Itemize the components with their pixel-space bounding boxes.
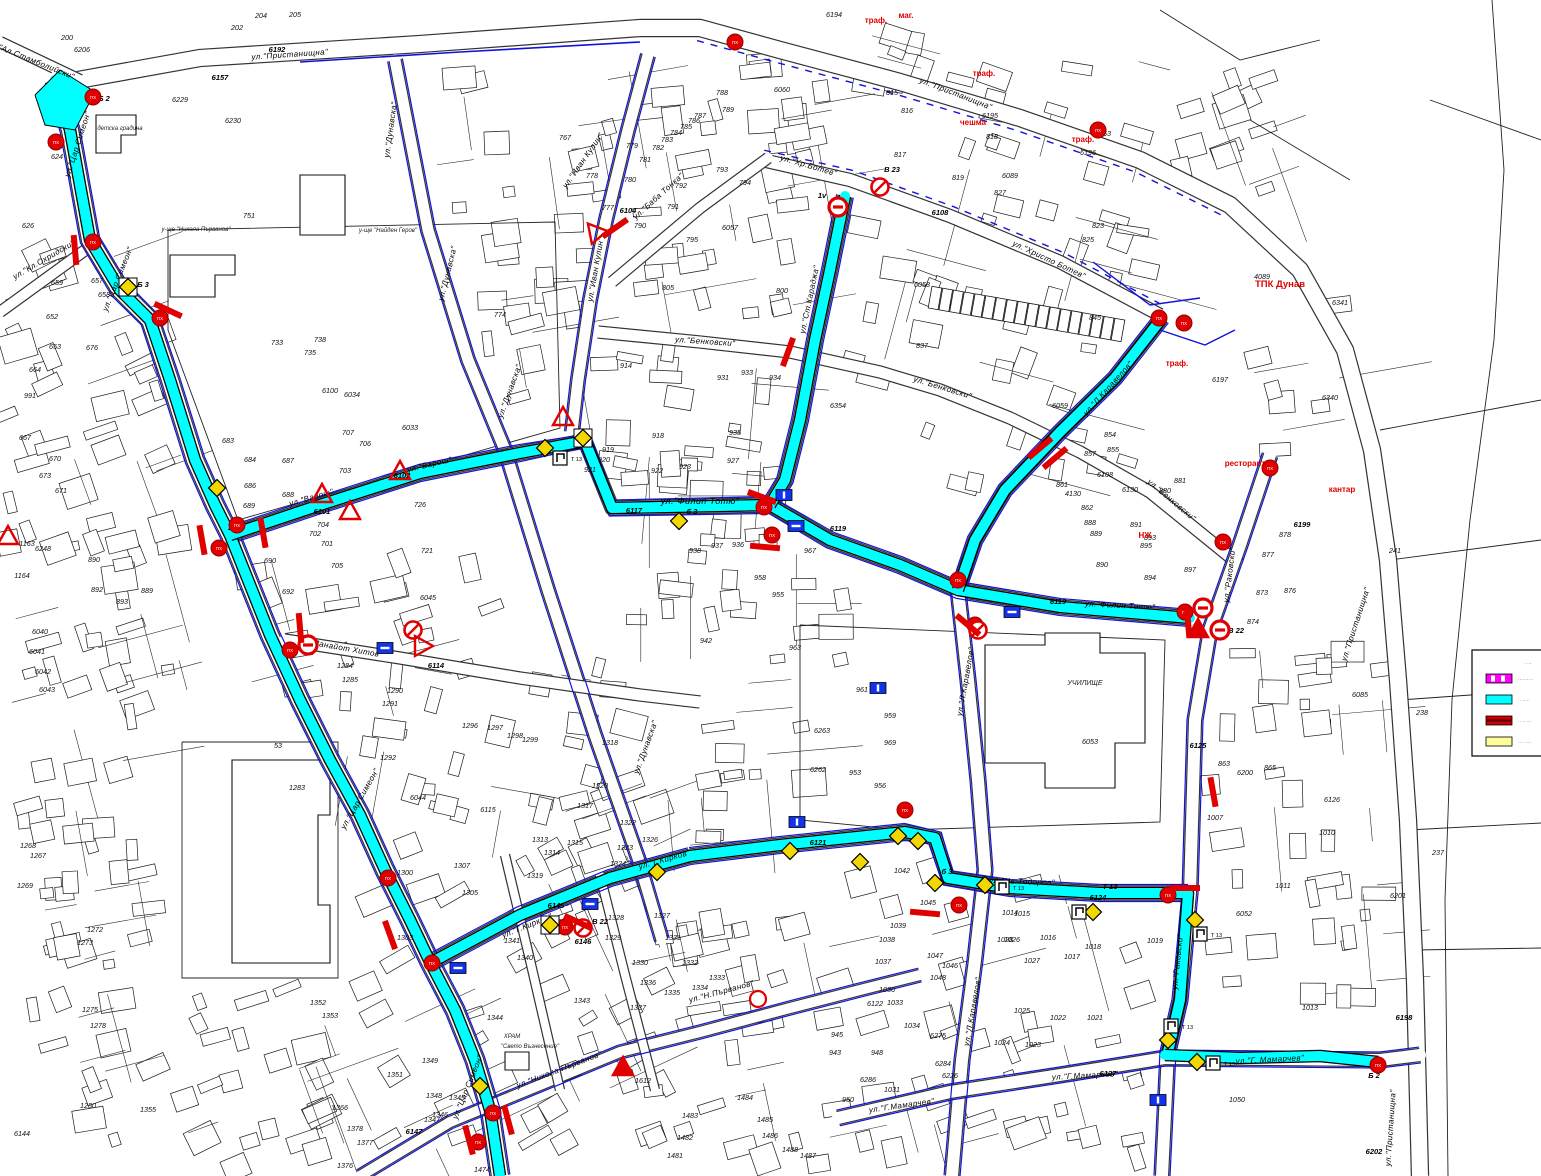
parcel-number: 948: [871, 1048, 883, 1057]
parcel-outline: [1246, 933, 1277, 960]
parcel-number: 6100: [322, 386, 338, 395]
hydrant-label: ПХ: [956, 903, 962, 908]
red-poi-label: траф.: [865, 16, 887, 25]
parcel-number: 692: [282, 587, 294, 596]
parcel-number: 6122: [867, 999, 883, 1008]
hydrant-label: ПХ: [955, 578, 961, 583]
parcel-number: 6060: [774, 85, 790, 94]
parcel-outline: [812, 80, 830, 103]
parcel-number: 1019: [1147, 936, 1163, 945]
parcel-number: 1322: [620, 818, 636, 827]
parcel-number: 6206: [74, 45, 90, 54]
parcel-outline: [1258, 680, 1288, 704]
parcel-outline: [104, 756, 133, 783]
parcel-number: 1317: [577, 801, 594, 810]
water-facility-icon: [789, 817, 805, 828]
parcel-number: 1299: [522, 735, 538, 744]
parcel-outline: [863, 302, 879, 324]
parcel-outline: [592, 657, 606, 678]
parcel-outline: [965, 1109, 997, 1128]
legend-swatch: [1486, 695, 1512, 704]
parcel-number: 782: [652, 143, 664, 152]
parcel-boundary-line: [736, 707, 792, 712]
parcel-outline: [715, 743, 744, 763]
no-entry-sign-icon: [1194, 599, 1212, 617]
fire-hydrant-icon: ПХ: [1262, 460, 1278, 476]
parcel-number: 6194: [826, 10, 842, 19]
parcel-number: 1267: [30, 851, 47, 860]
parcel-number: 6045: [420, 593, 437, 602]
parcel-number: 919: [602, 445, 614, 454]
parcel-boundary-line: [491, 786, 560, 798]
parcel-number: 918: [652, 431, 664, 440]
parcel-outline: [126, 839, 138, 860]
parcel-boundary-line: [492, 811, 500, 858]
street-code-label: 6117: [626, 506, 643, 515]
parcel-number: 1487: [800, 1151, 817, 1160]
parcel-number: 6059: [1052, 401, 1068, 410]
parcel-number: 823: [1092, 221, 1104, 230]
parcel-number: 1164: [14, 571, 29, 580]
parcel-number: 1290: [387, 686, 403, 695]
poi-label: УЧИЛИЩЕ: [1066, 680, 1102, 687]
parcel-number: 6275: [930, 1031, 947, 1040]
parcel-outline: [108, 1132, 121, 1147]
valve-box: [553, 451, 567, 465]
street-name-label: ул."Л.Каравелов": [1081, 359, 1136, 418]
parcel-number: 673: [39, 471, 51, 480]
street-code-label: 6119: [1050, 597, 1067, 606]
street-code-label: 6146: [575, 937, 593, 946]
parcel-outline: [63, 675, 92, 698]
legend: · ··············· ······· ·· ····· · ···…: [1472, 650, 1541, 756]
hydrant-label: ПХ: [490, 1111, 496, 1116]
parcel-boundary-line: [126, 662, 202, 682]
parcel-outline: [832, 652, 848, 667]
fire-hydrant-icon: ПХ: [85, 89, 101, 105]
parcel-number: 991: [24, 391, 36, 400]
parcel-number: 671: [55, 486, 67, 495]
map-canvas[interactable]: ул."Ал.Стамболийски"ул."Кл.Охридски"ул."…: [0, 0, 1541, 1176]
parcel-outline: [145, 445, 176, 474]
parcel-outline: [1044, 102, 1068, 119]
parcel-number: 1612: [635, 1076, 651, 1085]
parcel-outline: [697, 1098, 725, 1115]
parcel-number: 890: [1096, 560, 1108, 569]
parcel-number: 1045: [920, 898, 937, 907]
parcel-number: 6057: [722, 223, 739, 232]
parcel-number: 658: [98, 290, 110, 299]
parcel-number: 855: [1107, 445, 1120, 454]
parcel-number: 1345: [449, 1093, 466, 1102]
parcel-outline: [86, 632, 103, 648]
parcel-number: 1275: [82, 1005, 99, 1014]
parcel-outline: [880, 894, 903, 918]
valve-code-label: Т 13: [571, 457, 582, 463]
parcel-outline: [0, 406, 18, 424]
parcel-boundary-line: [347, 1078, 371, 1130]
parcel-number: 690: [264, 556, 276, 565]
parcel-outline: [708, 99, 723, 122]
parcel-number: 1486: [762, 1131, 778, 1140]
parcel-outline: [459, 553, 481, 583]
parcel-outline: [1255, 181, 1274, 196]
parcel-number: 1025: [1014, 1006, 1031, 1015]
parcel-outline: [1124, 980, 1156, 1009]
parcel-boundary-line: [1382, 700, 1387, 752]
poi-label: ХРАМ: [503, 1034, 521, 1040]
parcel-number: 857: [1084, 449, 1097, 458]
parcel-outline: [433, 794, 458, 817]
parcel-number: 789: [722, 105, 734, 114]
red-poi-label: траф.: [1072, 135, 1094, 144]
parcel-outline: [696, 831, 721, 844]
parcel-outline: [258, 1118, 279, 1140]
legend-header: · ···: [1524, 661, 1531, 666]
parcel-number: 707: [342, 428, 355, 437]
parcel-number: 927: [727, 456, 740, 465]
parcel-outline: [704, 606, 720, 632]
facility-bar: [796, 819, 798, 826]
parcel-outline: [478, 599, 504, 617]
parcel-outline: [1253, 704, 1277, 732]
prohibition-sign-icon: [872, 179, 889, 196]
parcel-number: 1314: [544, 848, 560, 857]
parcel-number: 1048: [930, 973, 946, 982]
parcel-number: 1341: [504, 936, 520, 945]
parcel-boundary-line: [98, 625, 183, 648]
parcel-number: 854: [1104, 430, 1116, 439]
no-entry-bar: [303, 643, 313, 646]
parcel-outline: [234, 990, 268, 1010]
parcel-outline: [1036, 200, 1058, 221]
block-boundary: [1390, 540, 1541, 560]
parcel-number: 1284: [337, 661, 353, 670]
parcel-outline: [83, 529, 105, 556]
parcel-outline: [380, 945, 415, 974]
hydrant-label: ПХ: [1095, 128, 1101, 133]
hydrant-label: ПХ: [1375, 1063, 1381, 1068]
water-facility-icon: [788, 521, 804, 532]
parcel-outline: [699, 909, 725, 938]
parcel-number: 819: [952, 173, 964, 182]
hydrant-label: ПХ: [761, 505, 767, 510]
parcel-outline: [1095, 1034, 1121, 1047]
parcel-number: 676: [86, 343, 98, 352]
water-facility-icon: [870, 683, 886, 694]
parcel-boundary-line: [1370, 808, 1373, 841]
parcel-number: 6042: [35, 667, 51, 676]
parcel-outline: [602, 118, 617, 135]
parcel-boundary-line: [907, 249, 986, 270]
parcel-number: 1015: [1014, 909, 1031, 918]
parcel-number: 877: [1262, 550, 1275, 559]
hydrant-label: ПХ: [769, 533, 775, 538]
parcel-outline: [693, 287, 710, 311]
parcel-number: 6033: [402, 423, 418, 432]
parcel-number: 935: [729, 428, 742, 437]
parcel-outline: [232, 1027, 249, 1051]
parcel-number: 6040: [32, 627, 48, 636]
parcel-outline: [725, 1039, 740, 1065]
parcel-number: 6058: [914, 280, 930, 289]
parcel-number: 894: [1144, 573, 1156, 582]
hydrant-label: ПХ: [1156, 316, 1162, 321]
parcel-number: 777: [602, 203, 615, 212]
valve-diamond: [1085, 904, 1102, 921]
hydrant-label: ПХ: [429, 961, 435, 966]
street-code-label: 6127: [1100, 1069, 1118, 1078]
parcel-outline: [661, 599, 674, 618]
parcel-number: 6126: [1324, 795, 1340, 804]
parcel-boundary-line: [1273, 115, 1305, 127]
parcel-outline: [606, 420, 631, 446]
parcel-number: 1329: [605, 933, 621, 942]
parcel-outline: [781, 97, 804, 121]
parcel-outline: [814, 1007, 844, 1030]
valve-diamond-icon: [574, 429, 592, 447]
parcel-number: 1011: [1275, 881, 1290, 890]
red-poi-label: траф.: [1166, 359, 1188, 368]
valve-box: [1164, 1019, 1178, 1033]
valve-diamond-icon: [119, 278, 137, 296]
parcel-number: 6196: [1080, 148, 1096, 157]
cadastral-map[interactable]: ул."Ал.Стамболийски"ул."Кл.Охридски"ул."…: [0, 0, 1541, 1176]
parcel-outline: [273, 979, 301, 997]
fire-hydrant-icon: ПХ: [1215, 534, 1231, 550]
parcel-boundary-line: [748, 679, 791, 683]
parcel-number: 880: [1159, 486, 1171, 495]
parcel-outline: [1264, 380, 1283, 400]
parcel-number: 959: [884, 711, 896, 720]
parcel-number: 703: [339, 466, 351, 475]
facility-dash: [454, 967, 463, 969]
parcel-outline: [965, 472, 984, 493]
parcel-boundary-line: [123, 746, 204, 760]
parcel-number: 1485: [757, 1115, 774, 1124]
parcel-number: 967: [804, 546, 817, 555]
street-code-label: 6119: [830, 524, 847, 533]
parcel-number: 6108: [1097, 470, 1113, 479]
parcel-number: 780: [624, 175, 636, 184]
parcel-number: 1285: [342, 675, 359, 684]
parcel-outline: [30, 820, 55, 844]
parcel-number: 892: [91, 585, 103, 594]
fire-hydrant-icon: ПХ: [229, 517, 245, 533]
parcel-outline: [91, 435, 126, 465]
parcel-number: 958: [754, 573, 766, 582]
parcel-number: 733: [271, 338, 283, 347]
building-outline: [170, 255, 235, 297]
parcel-number: 1377: [357, 1138, 374, 1147]
poi-label: у-ще "Никола Първанов": [161, 227, 232, 233]
parcel-number: 767: [559, 133, 572, 142]
street-code-label: 6157: [212, 73, 230, 82]
parcel-outline: [881, 1137, 907, 1168]
parcel-outline: [1209, 828, 1244, 852]
parcel-number: 6201: [1390, 891, 1406, 900]
parcel-boundary-line: [767, 780, 775, 874]
parcel-outline: [703, 791, 727, 811]
parcel-outline: [1249, 121, 1278, 139]
parcel-number: 876: [1284, 586, 1296, 595]
parcel-boundary-line: [12, 693, 46, 702]
fire-hydrant-icon: ПХ: [282, 642, 298, 658]
water-facility-icon: [450, 963, 466, 974]
street-code-label: б 3: [942, 867, 954, 876]
parcel-boundary-line: [747, 1062, 783, 1070]
parcel-number: 1303: [397, 933, 413, 942]
parcel-number: 1326: [642, 835, 658, 844]
parcel-boundary-line: [906, 1108, 918, 1152]
parcel-outline: [1302, 710, 1332, 737]
parcel-outline: [1117, 454, 1138, 469]
red-poi-label: траф.: [973, 69, 995, 78]
parcel-number: 1333: [709, 973, 725, 982]
hydrant-label: ПХ: [234, 523, 240, 528]
parcel-number: 921: [584, 465, 596, 474]
parcel-number: 687: [282, 456, 295, 465]
building-outline: [96, 115, 136, 153]
parcel-number: 800: [776, 286, 788, 295]
parcel-number: 6197: [1212, 375, 1229, 384]
parcel-number: 795: [686, 235, 699, 244]
parcel-number: 787: [694, 111, 707, 120]
parcel-number: 683: [222, 436, 234, 445]
parcel-outline: [105, 638, 130, 667]
parcel-number: 659: [51, 278, 63, 287]
parcel-outline: [183, 1120, 221, 1155]
parcel-number: 793: [716, 165, 728, 174]
hydrant-label: ПХ: [90, 240, 96, 245]
parcel-outline: [701, 720, 734, 733]
gate-valve-icon: Т 13: [553, 451, 582, 465]
valve-box: [1206, 1056, 1220, 1070]
parcel-outline: [103, 959, 115, 969]
parcel-number: 1016: [1040, 933, 1056, 942]
parcel-number: 862: [1081, 503, 1093, 512]
fire-hydrant-icon: ПХ: [727, 34, 743, 50]
parcel-boundary-line: [906, 285, 916, 321]
building-outline: [505, 1052, 529, 1070]
parcel-number: 1047: [927, 951, 944, 960]
street-code-label: В 22: [592, 917, 609, 926]
parcel-number: 1297: [487, 723, 504, 732]
gate-valve-icon: [1072, 905, 1086, 919]
facility-dash: [1008, 611, 1017, 613]
parcel-number: 667: [19, 433, 32, 442]
parcel-number: 1291: [382, 699, 398, 708]
parcel-boundary-line: [1249, 166, 1299, 184]
parcel-number: 837: [916, 341, 929, 350]
parcel-boundary-line: [1273, 148, 1307, 241]
parcel-outline: [503, 186, 516, 198]
parcel-number: 6052: [1236, 909, 1252, 918]
parcel-outline: [1121, 1132, 1144, 1147]
parcel-boundary-line: [1332, 706, 1425, 714]
parcel-outline: [372, 718, 406, 740]
street-code-label: В 23: [884, 165, 901, 174]
parcel-number: 969: [884, 738, 896, 747]
hydrant-label: ПХ: [90, 95, 96, 100]
parcel-outline: [649, 370, 682, 383]
street-code-label: 6145: [548, 901, 566, 910]
parcel-number: 237: [1431, 848, 1445, 857]
parcel-number: 1046: [942, 961, 958, 970]
parcel-outline: [64, 758, 97, 786]
parcel-number: 891: [1130, 520, 1142, 529]
parcel-number: 817: [894, 150, 907, 159]
parcel-number: 1038: [879, 935, 895, 944]
red-poi-label: ресторант: [1225, 459, 1266, 468]
parcel-outline: [958, 137, 975, 159]
parcel-number: 1347: [424, 1115, 441, 1124]
parcel-outline: [1205, 937, 1232, 955]
street-code-label: 6104: [620, 206, 638, 215]
block-boundary: [1445, 0, 1504, 1176]
facility-bar: [1157, 1097, 1159, 1104]
parcel-number: 6230: [225, 116, 241, 125]
hydrant-label: ПХ: [216, 546, 222, 551]
parcel-boundary-line: [437, 160, 474, 165]
water-facility-icon: [377, 643, 393, 654]
parcel-outline: [993, 195, 1023, 218]
parcel-number: 1483: [682, 1111, 698, 1120]
fire-hydrant-icon: ПХ: [897, 802, 913, 818]
parcel-number: 1331: [665, 933, 681, 942]
parcel-number: 1278: [90, 1021, 106, 1030]
fire-hydrant-icon: ПХ: [950, 572, 966, 588]
parcel-number: 6053: [1082, 737, 1098, 746]
fire-hydrant-icon: ПХ: [951, 897, 967, 913]
parcel-outline: [291, 1032, 331, 1065]
legend-swatch: [1486, 674, 1512, 683]
valve-code-label: Т 13: [1211, 933, 1222, 939]
parcel-outline: [1337, 985, 1351, 1008]
parcel-outline: [442, 66, 477, 90]
red-poi-label: НЖ: [1138, 531, 1152, 540]
block-boundary: [1250, 120, 1350, 180]
parcel-outline: [38, 1037, 68, 1054]
parcel-number: 624: [51, 152, 63, 161]
valve-code-label: Т 13: [1224, 1062, 1235, 1068]
parcel-number: 923: [679, 462, 691, 471]
parcel-number: 1307: [454, 861, 471, 870]
parcel-outline: [1078, 1125, 1101, 1148]
parcel-number: 751: [243, 211, 255, 220]
parcel-number: 953: [849, 768, 861, 777]
parcel-number: 6130: [1122, 485, 1138, 494]
parcel-number: 1034: [904, 1021, 920, 1030]
parcel-number: 1292: [380, 753, 396, 762]
parcel-outline: [1289, 833, 1306, 858]
parcel-outline: [633, 280, 658, 297]
parcel-outline: [1230, 649, 1256, 658]
fire-hydrant-icon: ПХ: [48, 134, 64, 150]
parcel-number: 6041: [29, 647, 45, 656]
parcel-outline: [536, 267, 554, 288]
parcel-number: 1280: [80, 1101, 96, 1110]
parcel-outline: [696, 770, 722, 790]
parcel-outline: [1312, 918, 1335, 945]
parcel-outline: [127, 929, 152, 947]
parcel-outline: [98, 987, 136, 1013]
parcel-outline: [109, 860, 129, 885]
parcel-number: 6229: [172, 95, 188, 104]
parcel-outline: [921, 422, 935, 439]
valve-diamond-icon: [1085, 904, 1102, 921]
parcel-number: 955: [772, 590, 785, 599]
